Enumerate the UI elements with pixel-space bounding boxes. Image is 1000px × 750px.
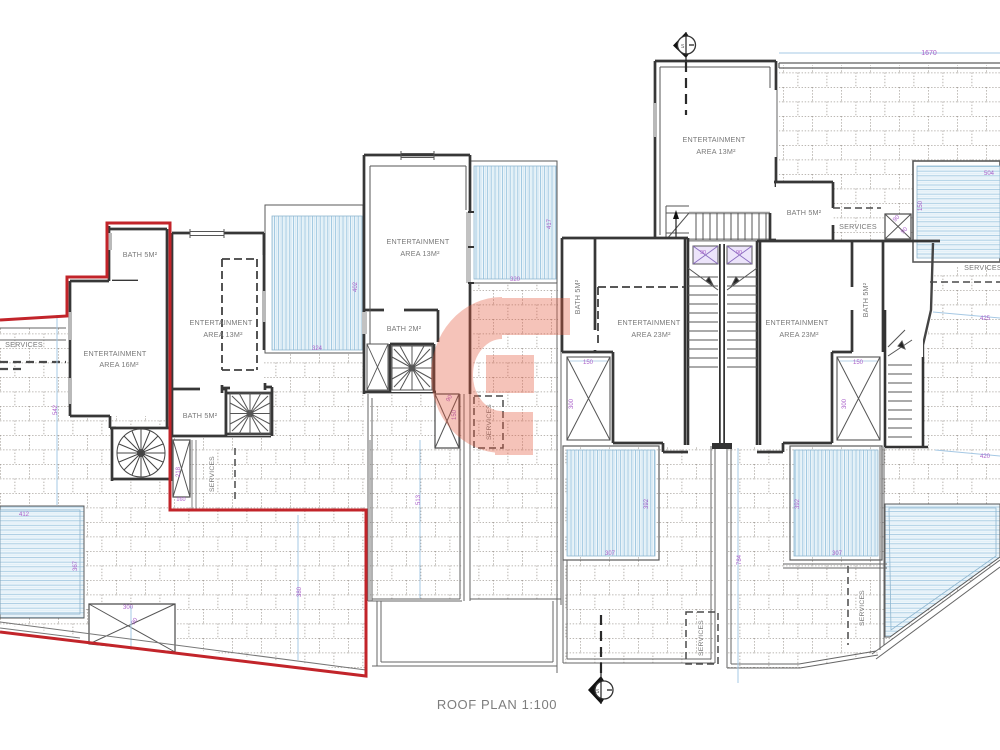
svg-text:ENTERTAINMENT: ENTERTAINMENT — [189, 318, 252, 327]
svg-text:150: 150 — [583, 360, 594, 366]
svg-text:307: 307 — [605, 551, 616, 557]
svg-text:BATH 5M²: BATH 5M² — [787, 208, 822, 217]
svg-text:SERVICES: SERVICES — [859, 590, 866, 626]
svg-text:AREA 23M²: AREA 23M² — [631, 330, 671, 339]
svg-text:417: 417 — [547, 218, 553, 229]
svg-text:ENTERTAINMENT: ENTERTAINMENT — [682, 135, 745, 144]
svg-text:392: 392 — [795, 498, 801, 509]
svg-text:ENTERTAINMENT: ENTERTAINMENT — [617, 318, 680, 327]
svg-text:AREA 13M²: AREA 13M² — [696, 147, 736, 156]
svg-text:BATH 5M²: BATH 5M² — [183, 411, 218, 420]
svg-text:SERVICES: SERVICES — [209, 456, 216, 492]
svg-text:SERVICES: SERVICES — [698, 620, 705, 656]
svg-text:160: 160 — [176, 497, 185, 503]
svg-text:784: 784 — [737, 554, 743, 565]
svg-text:90: 90 — [736, 250, 742, 256]
svg-text:504: 504 — [984, 171, 995, 177]
svg-text:AREA 16M²: AREA 16M² — [99, 360, 139, 369]
svg-text:90: 90 — [700, 250, 706, 256]
svg-text:412: 412 — [19, 512, 30, 518]
svg-text:513: 513 — [416, 494, 422, 505]
svg-text:BATH 2M²: BATH 2M² — [387, 324, 422, 333]
svg-text:300: 300 — [569, 398, 575, 409]
svg-text:AREA 13M²: AREA 13M² — [203, 330, 243, 339]
svg-text:392: 392 — [644, 498, 650, 509]
svg-text:150: 150 — [853, 360, 864, 366]
svg-text:BATH 5M²: BATH 5M² — [861, 282, 870, 317]
svg-text:AREA 23M²: AREA 23M² — [779, 330, 819, 339]
svg-text:420: 420 — [980, 454, 991, 460]
svg-text:320: 320 — [510, 277, 521, 283]
svg-text:1670: 1670 — [921, 50, 937, 57]
svg-text:367: 367 — [73, 560, 79, 571]
svg-text:ROOF PLAN 1:100: ROOF PLAN 1:100 — [437, 697, 557, 712]
svg-text:380: 380 — [297, 586, 303, 597]
svg-text:ENTERTAINMENT: ENTERTAINMENT — [765, 318, 828, 327]
svg-text:324: 324 — [312, 346, 323, 352]
svg-text:SERVICES: SERVICES — [964, 263, 1000, 272]
svg-text:AREA 13M²: AREA 13M² — [400, 249, 440, 258]
svg-text:402: 402 — [353, 281, 359, 292]
svg-text:150: 150 — [918, 200, 924, 211]
svg-text:SERVICES: SERVICES — [839, 222, 877, 231]
svg-text:300: 300 — [123, 605, 134, 611]
svg-text:ENTERTAINMENT: ENTERTAINMENT — [386, 237, 449, 246]
svg-text:ENTERTAINMENT: ENTERTAINMENT — [83, 349, 146, 358]
svg-text:300: 300 — [842, 398, 848, 409]
svg-text:425: 425 — [980, 316, 991, 322]
svg-text:542: 542 — [53, 404, 59, 415]
svg-text:218: 218 — [176, 466, 182, 477]
svg-text:BATH 5M²: BATH 5M² — [573, 279, 582, 314]
svg-text:SERVICES: SERVICES — [5, 340, 43, 349]
svg-text:307: 307 — [832, 551, 843, 557]
svg-text:BATH 5M²: BATH 5M² — [123, 250, 158, 259]
